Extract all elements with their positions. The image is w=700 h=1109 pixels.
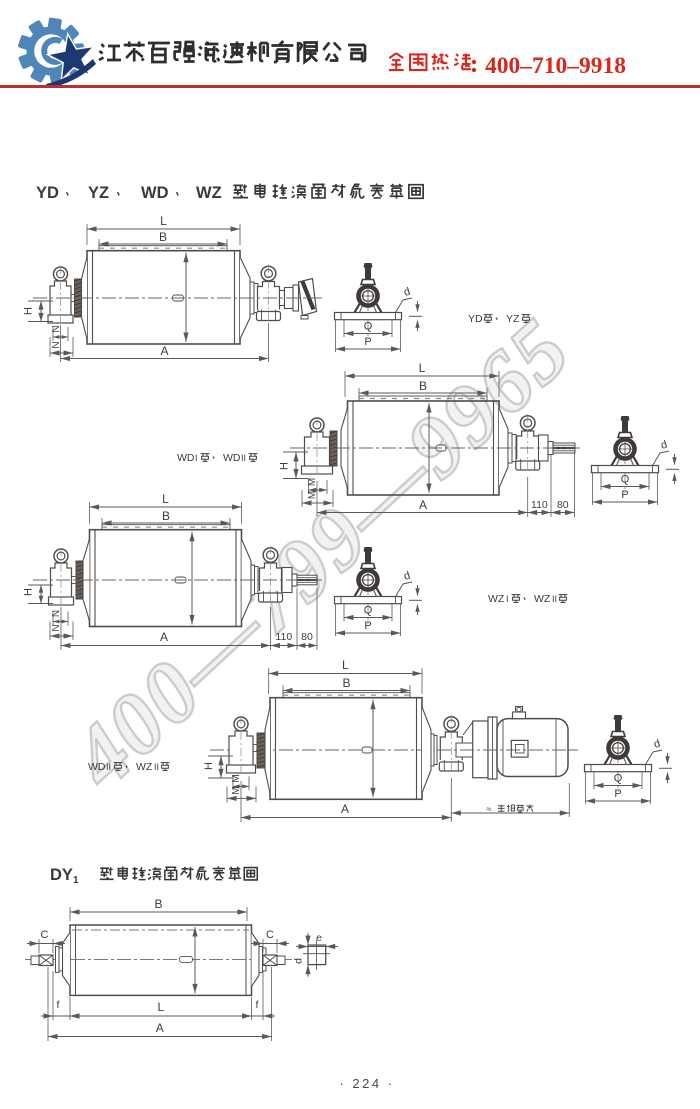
svg-text:L: L [342, 658, 349, 672]
svg-text:H: H [203, 762, 215, 770]
svg-text:Q: Q [364, 605, 373, 617]
svg-text:A: A [156, 1021, 164, 1035]
svg-text:d: d [293, 958, 305, 964]
svg-text:N: N [51, 624, 62, 631]
svg-text:L: L [162, 492, 169, 506]
svg-text:DY: DY [50, 866, 73, 884]
svg-text:1: 1 [73, 875, 79, 886]
svg-text:400–710–9918: 400–710–9918 [485, 53, 626, 79]
svg-text:e: e [316, 932, 322, 944]
svg-text:I: I [195, 453, 198, 463]
svg-text:80: 80 [301, 631, 313, 643]
svg-text:Q: Q [364, 321, 373, 333]
svg-text:P: P [614, 788, 621, 800]
svg-text:WD: WD [141, 184, 169, 202]
svg-text:M: M [307, 491, 318, 499]
svg-text:WZ: WZ [136, 761, 153, 773]
svg-text:d: d [402, 285, 412, 298]
svg-text:P: P [364, 620, 371, 632]
svg-text:YD: YD [468, 313, 483, 325]
svg-text:WZ: WZ [488, 593, 505, 605]
svg-text:M: M [231, 786, 242, 794]
svg-text:II: II [241, 453, 246, 463]
svg-text:A: A [160, 630, 168, 644]
svg-text:A: A [419, 498, 427, 512]
svg-text:B: B [162, 509, 170, 523]
svg-text:L: L [419, 361, 426, 375]
svg-text:WD: WD [88, 761, 106, 773]
svg-text:YZ: YZ [506, 313, 520, 325]
svg-text:A: A [341, 802, 349, 816]
svg-text:M: M [231, 774, 242, 782]
svg-text:WD: WD [177, 452, 195, 464]
svg-text:d: d [402, 569, 412, 582]
svg-text:d: d [659, 438, 669, 451]
svg-text:II: II [552, 594, 557, 604]
svg-text:C: C [41, 929, 49, 941]
svg-text:C: C [266, 929, 274, 941]
svg-text:Q: Q [621, 474, 630, 486]
svg-text:110: 110 [275, 631, 292, 643]
svg-text:110: 110 [531, 499, 548, 511]
svg-text:P: P [621, 489, 628, 501]
svg-text:M: M [307, 478, 318, 486]
svg-text:B: B [159, 230, 167, 244]
svg-text:WZ: WZ [534, 593, 551, 605]
svg-text:L: L [157, 1000, 164, 1014]
svg-text:H: H [23, 307, 35, 315]
svg-text:N: N [51, 610, 62, 617]
svg-text:80: 80 [557, 499, 569, 511]
svg-text:H: H [23, 588, 35, 596]
svg-text:H: H [279, 462, 291, 470]
svg-text:II: II [154, 762, 159, 772]
svg-text:d: d [652, 737, 662, 750]
svg-text:A: A [160, 344, 168, 358]
svg-text:f: f [57, 999, 60, 1011]
svg-text:I: I [506, 594, 509, 604]
svg-text:≈: ≈ [487, 804, 492, 814]
svg-text:YD: YD [36, 184, 59, 202]
svg-text:WZ: WZ [196, 184, 222, 202]
svg-text:YZ: YZ [88, 184, 109, 202]
svg-text:L: L [160, 214, 167, 228]
svg-text:B: B [154, 897, 162, 911]
svg-text:II: II [106, 762, 111, 772]
svg-text:WD: WD [223, 452, 241, 464]
svg-text:P: P [364, 336, 371, 348]
svg-text:B: B [342, 676, 350, 690]
svg-text:Q: Q [614, 773, 623, 785]
svg-text:f: f [256, 999, 259, 1011]
svg-text:B: B [419, 379, 427, 393]
